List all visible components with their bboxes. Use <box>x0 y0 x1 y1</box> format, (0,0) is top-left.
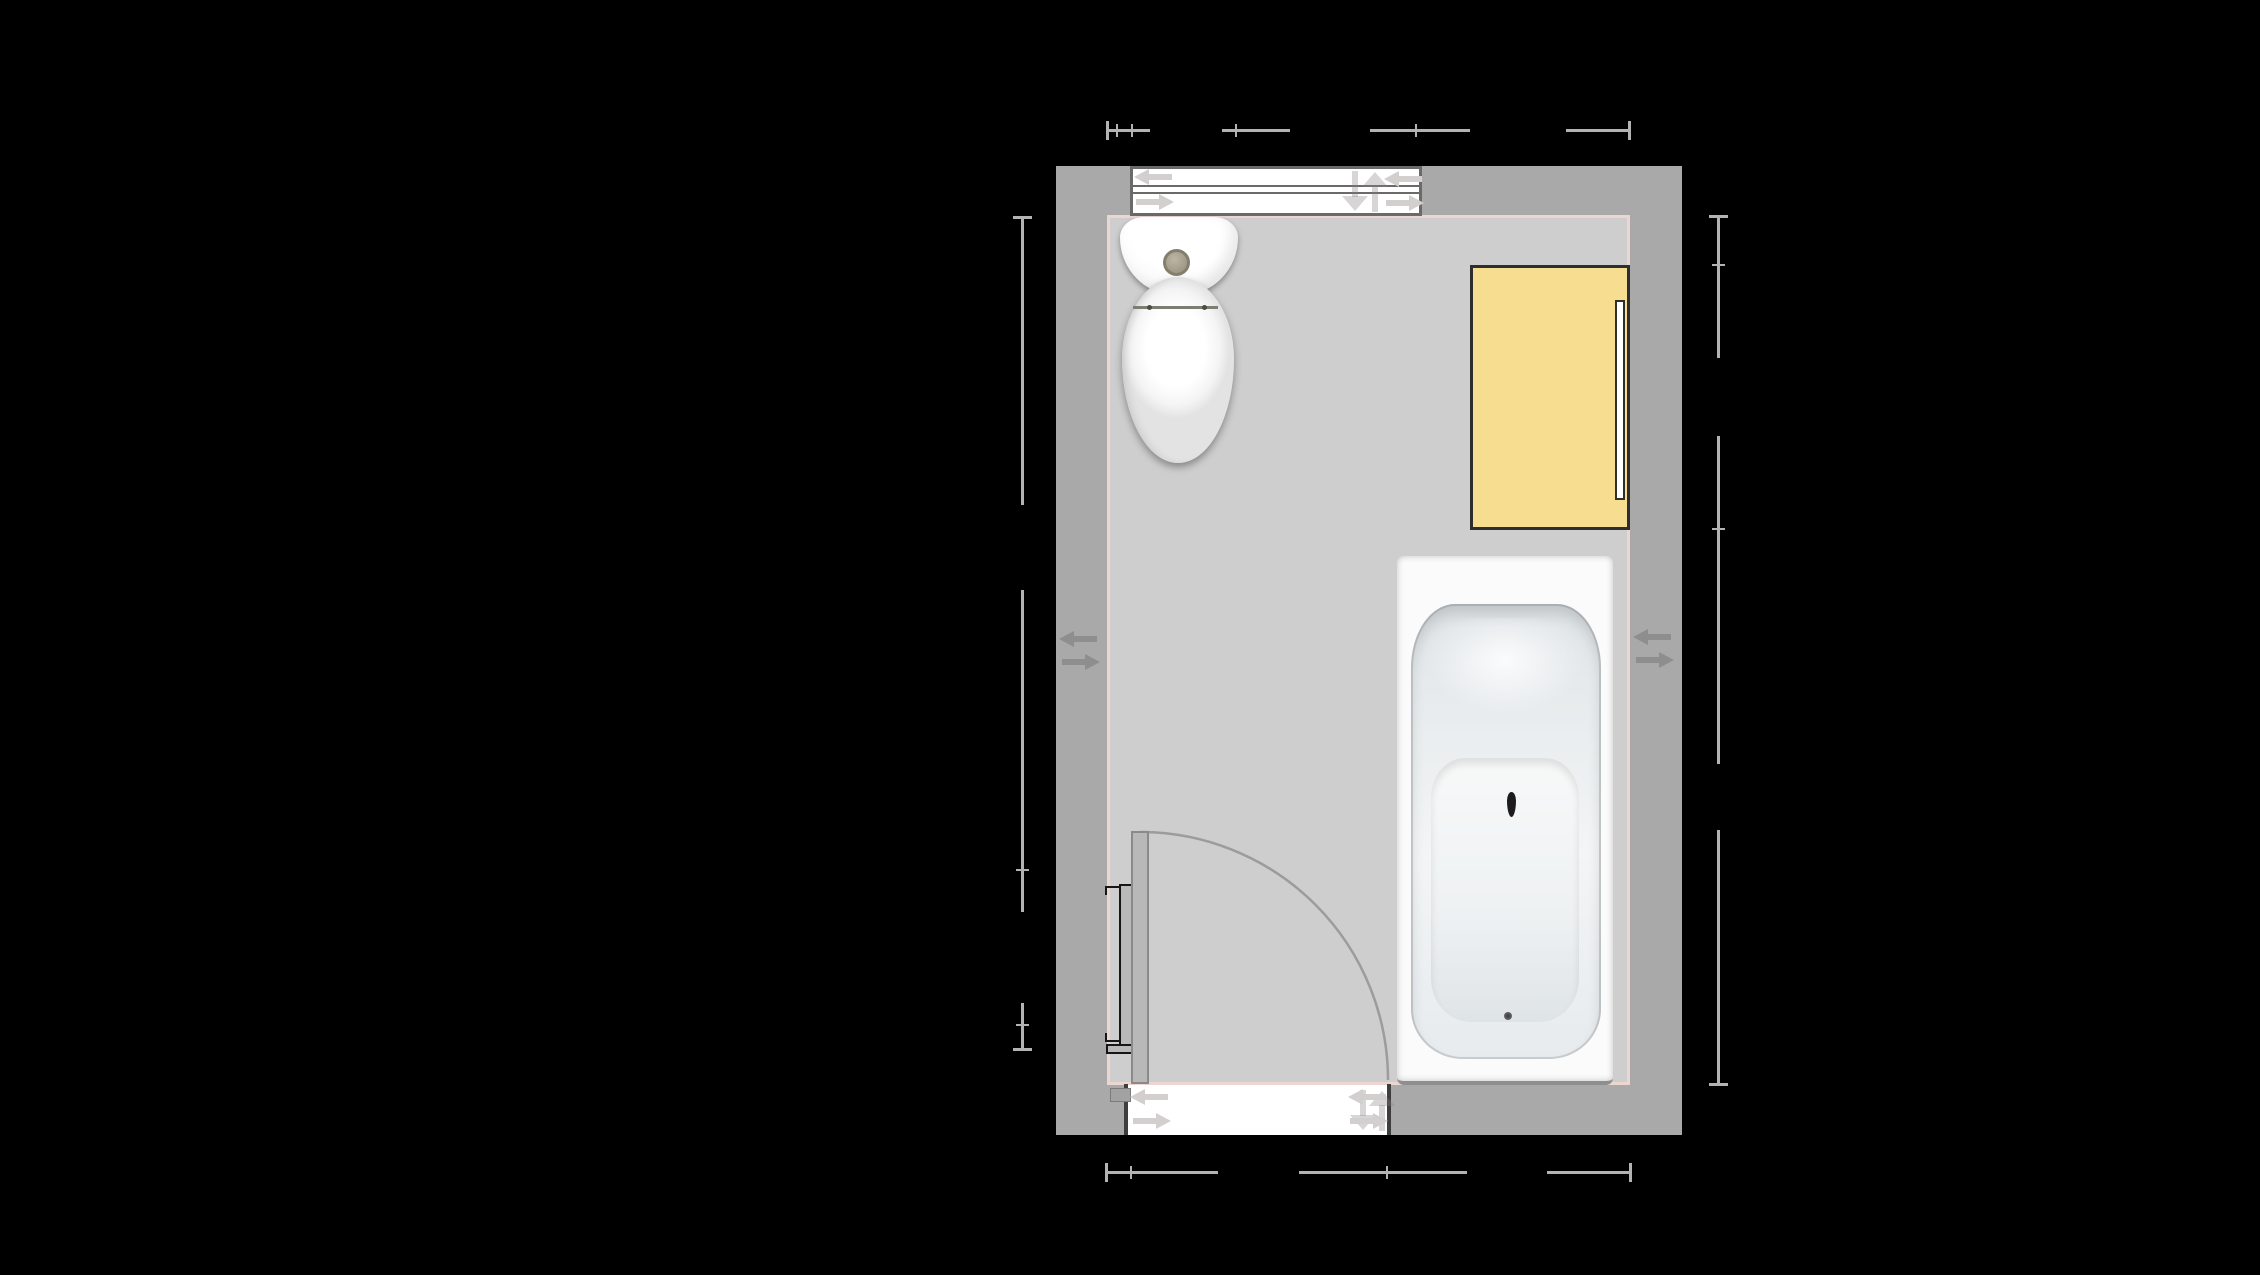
door-end-right-arrow-icon[interactable] <box>1350 1113 1388 1129</box>
door-slide-left-arrow-icon[interactable] <box>1130 1089 1168 1105</box>
door-leaf[interactable] <box>1131 831 1149 1084</box>
right-wall-move-left-arrow-icon[interactable] <box>1633 629 1671 645</box>
door-hinge-block <box>1110 1088 1131 1102</box>
left-wall-move-left-arrow-icon[interactable] <box>1059 631 1097 647</box>
door-end-left-arrow-icon[interactable] <box>1348 1089 1386 1105</box>
right-wall-move-right-arrow-icon[interactable] <box>1636 652 1674 668</box>
door-swing-arc <box>1050 150 1750 1200</box>
planner-canvas <box>0 0 2260 1275</box>
left-wall-move-right-arrow-icon[interactable] <box>1062 654 1100 670</box>
door-slide-right-arrow-icon[interactable] <box>1133 1113 1171 1129</box>
